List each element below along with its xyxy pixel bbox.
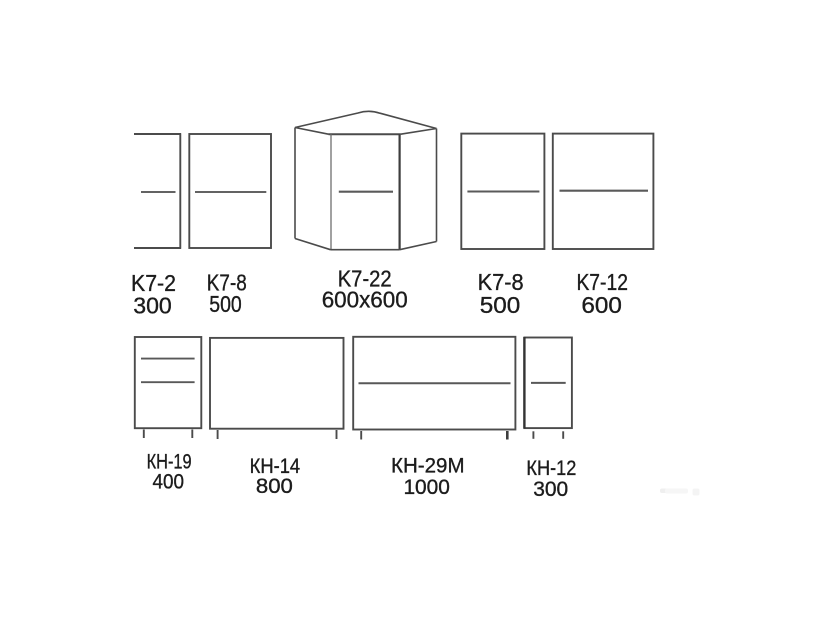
svg-text:600x600: 600x600	[322, 287, 408, 313]
svg-text:800: 800	[256, 475, 293, 498]
svg-text:500: 500	[480, 292, 521, 318]
svg-text:600: 600	[581, 292, 622, 318]
svg-text:КН-29М: КН-29М	[391, 455, 465, 478]
svg-text:400: 400	[153, 471, 185, 494]
svg-text:500: 500	[209, 291, 242, 317]
svg-text:КН-12: КН-12	[526, 457, 576, 480]
svg-text:1000: 1000	[403, 476, 450, 499]
svg-text:300: 300	[133, 293, 172, 319]
svg-text:300: 300	[533, 478, 568, 501]
